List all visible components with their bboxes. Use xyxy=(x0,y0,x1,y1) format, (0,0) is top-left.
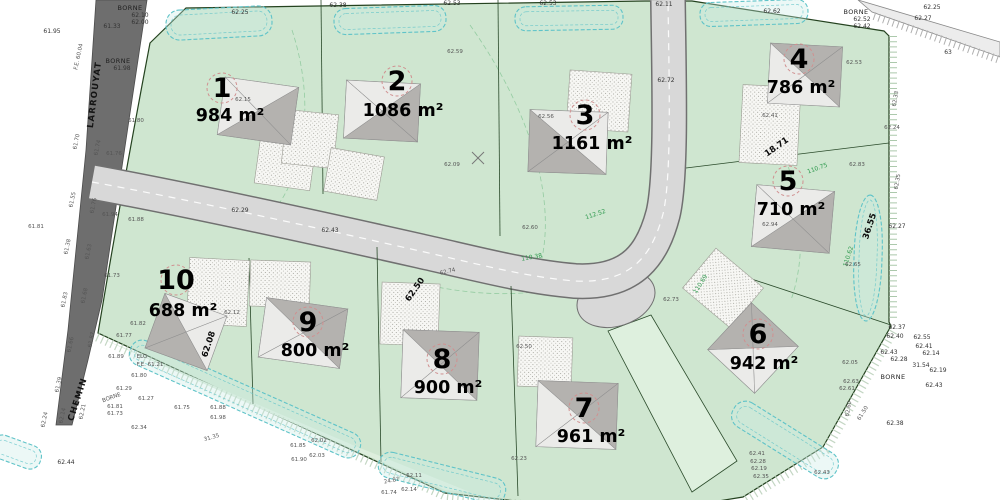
map-label: 62.03 xyxy=(309,453,325,459)
map-label: 61.94 xyxy=(102,212,118,218)
map-label: 62.19 xyxy=(929,367,946,374)
lot-area: 688 m² xyxy=(149,301,218,321)
driveway xyxy=(324,148,385,201)
lot-number: 9 xyxy=(299,307,318,338)
hedge-icon xyxy=(0,432,45,472)
map-label: 61.77 xyxy=(116,333,132,339)
map-label: 62.94 xyxy=(762,222,778,228)
map-label: 62.62 xyxy=(763,8,780,15)
map-label: 62.40 xyxy=(886,333,903,340)
map-label: F.E. 61.21 xyxy=(137,362,164,368)
map-label: 62.00 xyxy=(131,19,148,26)
map-label: 61.88 xyxy=(210,405,226,411)
map-label: 62.24 xyxy=(884,125,900,131)
map-label: 62.59 xyxy=(447,49,463,55)
map-label: 62.29 xyxy=(231,207,248,214)
map-label: 62.27 xyxy=(888,223,905,230)
map-label: 62.43 xyxy=(925,382,942,389)
lot-number: 6 xyxy=(749,319,768,350)
map-label: 61.90 xyxy=(291,457,307,463)
lot-number: 2 xyxy=(388,66,407,97)
map-label: 62.56 xyxy=(538,114,554,120)
map-label: 61.80 xyxy=(131,373,147,379)
map-label: 62.14 xyxy=(922,350,939,357)
map-label: 62.72 xyxy=(657,77,674,84)
lot-area: 786 m² xyxy=(767,78,836,98)
map-label: 62.28 xyxy=(750,459,766,465)
map-label: 62.53 xyxy=(846,60,862,66)
map-label: BORNE xyxy=(118,4,143,12)
map-label: 62.53 xyxy=(443,0,460,7)
lot-area: 1161 m² xyxy=(552,134,633,154)
map-label: 62.33 xyxy=(892,90,901,107)
hedge-icon xyxy=(515,5,623,31)
map-label: 62.38 xyxy=(329,2,346,9)
map-label: 61.70 xyxy=(72,133,81,150)
subdivision-plan-canvas: BORNE62.1062.00BORNE61.9861.9561.33F.E. … xyxy=(0,0,1000,500)
map-label: ELO xyxy=(137,354,148,360)
map-label: 61.80 xyxy=(128,118,144,124)
map-label: 61.81 xyxy=(107,404,123,410)
map-label: 62.28 xyxy=(890,356,907,363)
hedge-icon xyxy=(165,5,272,41)
map-label: 62.41 xyxy=(915,343,932,350)
lot-area: 942 m² xyxy=(730,354,799,374)
map-label: 62.42 xyxy=(853,23,870,30)
lot-area: 961 m² xyxy=(557,427,626,447)
map-label: 61.95 xyxy=(43,28,60,35)
map-label: 62.50 xyxy=(516,344,532,350)
map-label: 62.43 xyxy=(321,227,338,234)
map-label: 62.27 xyxy=(914,15,931,22)
map-label: 61.73 xyxy=(107,411,123,417)
hedge-icon xyxy=(334,5,447,35)
map-label: 62.65 xyxy=(845,262,861,268)
map-label: 61.98 xyxy=(113,65,130,72)
map-label: 62.19 xyxy=(751,466,767,472)
map-label: 62.24 xyxy=(40,411,49,428)
map-label: 62.14 xyxy=(401,487,417,493)
map-label: 62.11 xyxy=(655,1,672,8)
map-label: 62.41 xyxy=(762,113,778,119)
lot-number: 3 xyxy=(576,100,595,131)
map-label: 61.55 xyxy=(68,191,77,208)
map-label: 62.25 xyxy=(231,9,248,16)
map-label: 62.43 xyxy=(814,470,830,476)
lot-area: 900 m² xyxy=(414,378,483,398)
map-label: 62.38 xyxy=(886,420,903,427)
map-label: 62.25 xyxy=(923,4,940,11)
lot-number: 8 xyxy=(433,344,452,375)
map-label: 61.83 xyxy=(60,291,69,308)
map-label: 62.63 xyxy=(843,379,859,385)
map-label: 62.43 xyxy=(880,349,897,356)
map-label: 62.10 xyxy=(131,12,148,19)
map-label: BORNE xyxy=(102,392,123,404)
map-label: 62.09 xyxy=(444,162,460,168)
lot-area: 800 m² xyxy=(281,341,350,361)
map-label: 62.83 xyxy=(849,162,865,168)
map-label: 61.73 xyxy=(104,273,120,279)
hedge-icon xyxy=(700,0,809,27)
map-label: 61.29 xyxy=(116,386,132,392)
map-label: 62.23 xyxy=(511,456,527,462)
map-label: 63 xyxy=(944,49,952,56)
site-plan-map: BORNE62.1062.00BORNE61.9861.9561.33F.E. … xyxy=(0,0,1000,500)
map-label: 61.82 xyxy=(130,321,146,327)
map-label: 62.44 xyxy=(57,459,74,466)
map-label: 62.53 xyxy=(539,0,556,7)
lot-number: 1 xyxy=(213,73,232,104)
map-label: BORNE xyxy=(881,373,906,381)
map-label: 62.55 xyxy=(913,334,930,341)
map-label: 62.12 xyxy=(224,310,240,316)
map-label: 62.41 xyxy=(749,451,765,457)
map-label: 61.85 xyxy=(290,443,306,449)
lot-area: 1086 m² xyxy=(363,101,444,121)
map-label: 62.34 xyxy=(131,425,147,431)
map-label: BORNE xyxy=(106,57,131,65)
map-label: 62.15 xyxy=(235,97,251,103)
map-label: 61.75 xyxy=(174,405,190,411)
lot-area: 710 m² xyxy=(757,200,826,220)
map-label: F.E. 60.04 xyxy=(73,43,85,71)
map-label: 61.88 xyxy=(128,217,144,223)
map-label: BORNE xyxy=(844,8,869,16)
map-label: 62.73 xyxy=(663,297,679,303)
map-label: 61.27 xyxy=(138,396,154,402)
map-label: 62.02 xyxy=(311,438,327,444)
map-label: 62.11 xyxy=(406,473,422,479)
map-label: 62.61 xyxy=(839,386,855,392)
lot-number: 5 xyxy=(779,166,798,197)
map-label: 62.35 xyxy=(894,173,903,190)
lot-number: 10 xyxy=(157,265,195,296)
map-label: 61.50 xyxy=(856,405,870,422)
map-label: 31.54 xyxy=(912,362,929,369)
map-label: 62.60 xyxy=(522,225,538,231)
map-label: 61.89 xyxy=(108,354,124,360)
map-label: 61.38 xyxy=(63,238,72,255)
map-label: 61.74 xyxy=(381,490,397,496)
map-label: 62.35 xyxy=(753,474,769,480)
map-label: 61.98 xyxy=(210,415,226,421)
map-label: 61.81 xyxy=(28,224,44,230)
map-label: 62.05 xyxy=(842,360,858,366)
lot-number: 4 xyxy=(790,44,809,75)
map-label: 62.52 xyxy=(853,16,870,23)
lot-number: 7 xyxy=(575,393,594,424)
lot-area: 984 m² xyxy=(196,106,265,126)
map-label: 31.35 xyxy=(203,433,220,443)
map-label: 61.76 xyxy=(106,151,122,157)
map-label: 61.33 xyxy=(103,23,120,30)
map-label: 62.37 xyxy=(888,324,905,331)
